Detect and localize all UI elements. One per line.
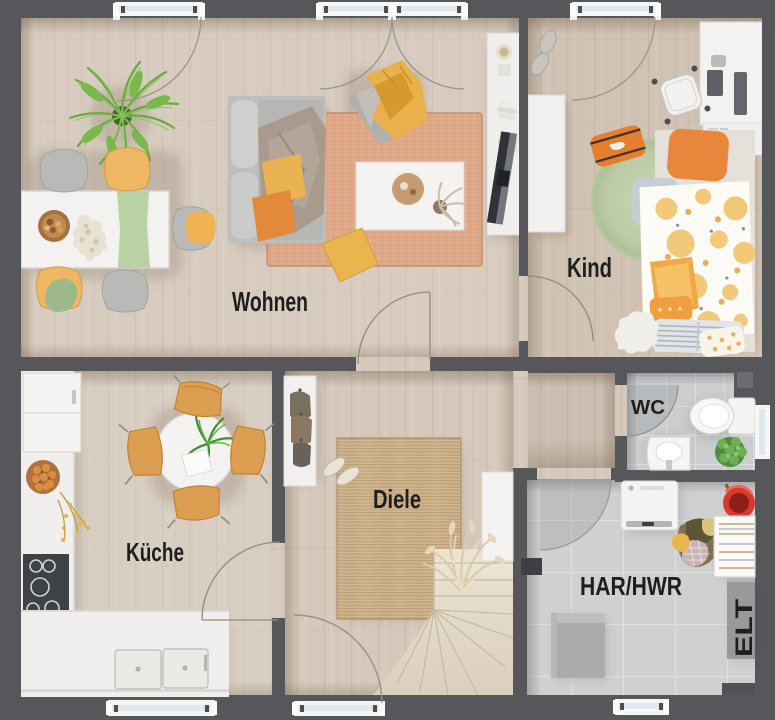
svg-text:HAR/HWR: HAR/HWR — [580, 571, 682, 601]
svg-text:Diele: Diele — [373, 484, 421, 514]
svg-text:ELT: ELT — [731, 599, 758, 657]
svg-text:Kind: Kind — [567, 252, 612, 283]
svg-text:WC: WC — [631, 397, 665, 419]
svg-text:Küche: Küche — [126, 537, 184, 567]
svg-text:Wohnen: Wohnen — [232, 286, 308, 317]
